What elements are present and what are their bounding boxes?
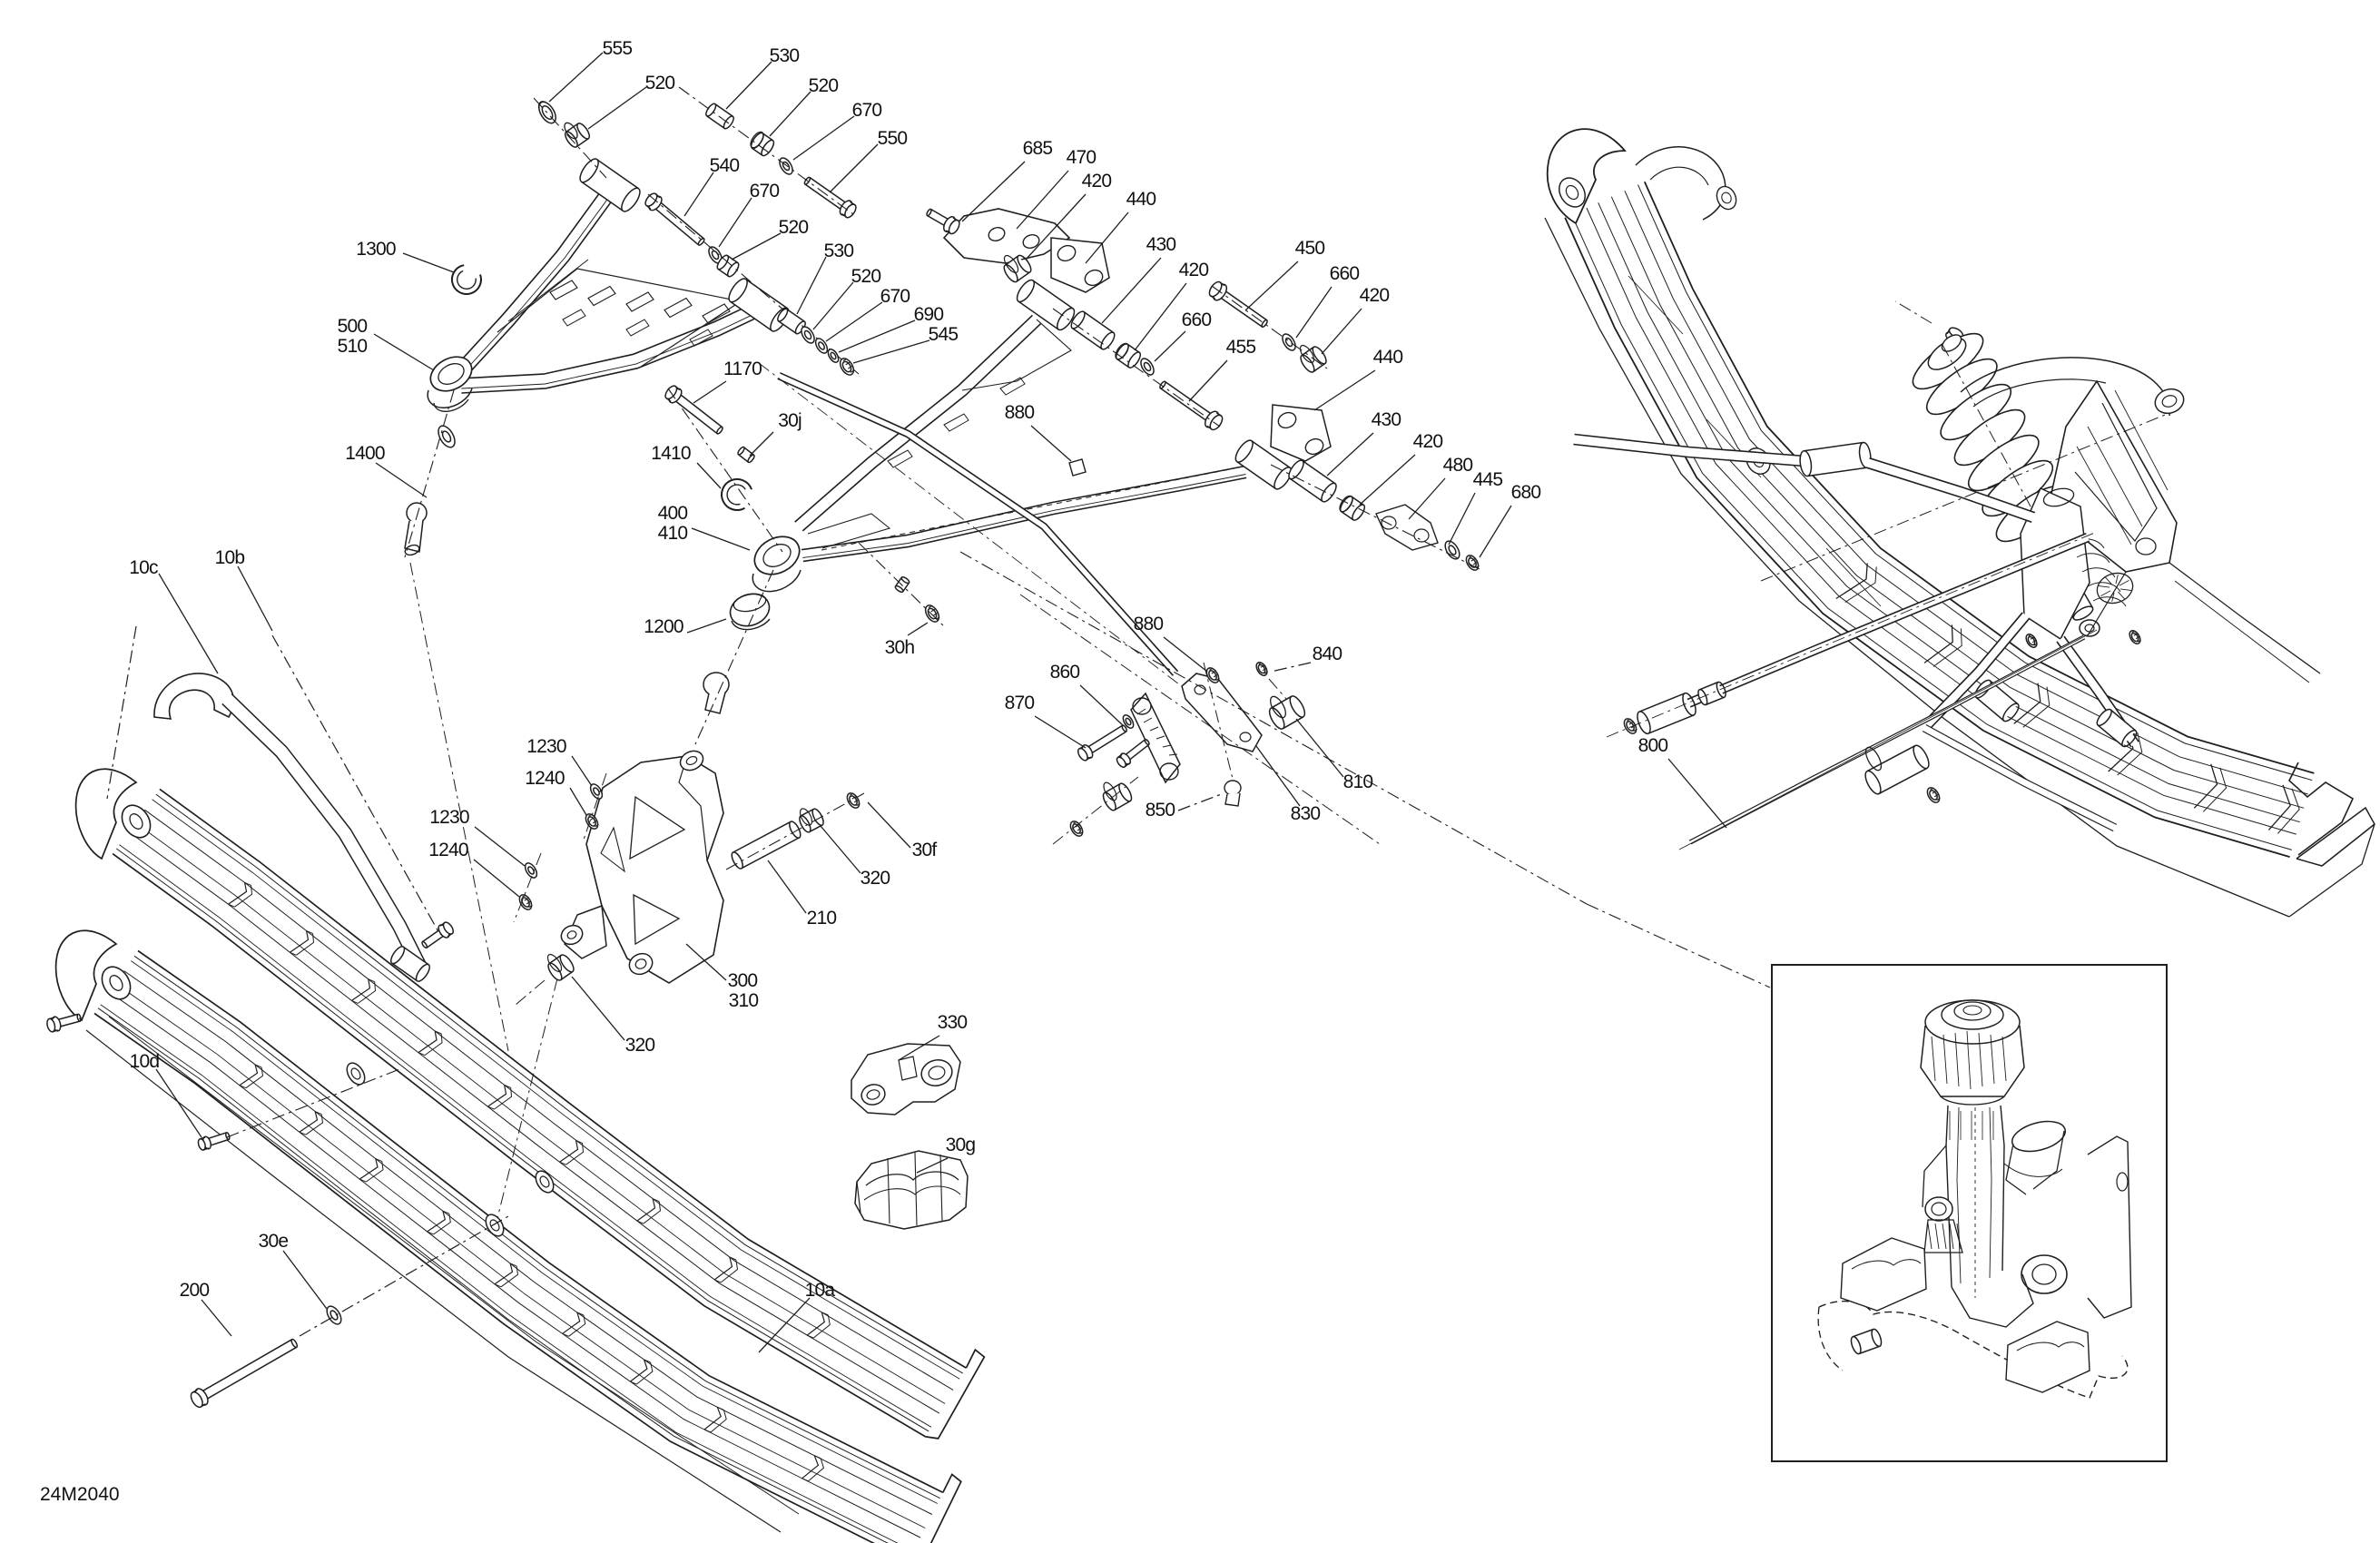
svg-text:880: 880 <box>1134 614 1164 634</box>
svg-text:685: 685 <box>1023 138 1053 159</box>
svg-text:850: 850 <box>1146 800 1175 821</box>
svg-text:870: 870 <box>1005 693 1035 713</box>
svg-text:1230: 1230 <box>429 807 469 828</box>
svg-text:420: 420 <box>1082 171 1112 192</box>
svg-text:430: 430 <box>1146 234 1176 255</box>
svg-text:520: 520 <box>645 73 675 93</box>
svg-text:860: 860 <box>1050 662 1080 683</box>
svg-text:300: 300 <box>728 970 758 991</box>
svg-text:320: 320 <box>861 868 890 889</box>
svg-text:670: 670 <box>880 286 910 307</box>
svg-text:880: 880 <box>1005 402 1035 423</box>
svg-text:24M2040: 24M2040 <box>40 1484 120 1505</box>
svg-text:520: 520 <box>779 217 809 238</box>
svg-text:10c: 10c <box>129 557 158 578</box>
svg-text:1230: 1230 <box>526 736 566 757</box>
svg-text:420: 420 <box>1179 260 1209 280</box>
svg-text:200: 200 <box>180 1280 210 1301</box>
svg-text:1410: 1410 <box>651 443 691 464</box>
svg-text:310: 310 <box>729 990 759 1011</box>
svg-text:1170: 1170 <box>723 359 762 379</box>
svg-text:1240: 1240 <box>428 840 468 860</box>
svg-text:445: 445 <box>1473 469 1503 490</box>
svg-text:430: 430 <box>1372 409 1401 430</box>
svg-text:810: 810 <box>1343 771 1373 792</box>
svg-text:680: 680 <box>1511 482 1541 503</box>
svg-text:440: 440 <box>1126 189 1156 210</box>
svg-text:840: 840 <box>1313 644 1342 664</box>
svg-text:1200: 1200 <box>644 616 684 637</box>
svg-text:545: 545 <box>929 324 959 345</box>
svg-text:30e: 30e <box>259 1231 289 1252</box>
svg-text:10a: 10a <box>805 1280 836 1301</box>
svg-text:690: 690 <box>914 304 944 325</box>
svg-text:420: 420 <box>1360 285 1390 306</box>
svg-text:210: 210 <box>807 908 837 929</box>
svg-text:550: 550 <box>878 128 908 149</box>
svg-text:555: 555 <box>603 38 633 59</box>
svg-text:660: 660 <box>1330 263 1360 284</box>
svg-text:455: 455 <box>1226 337 1256 358</box>
svg-text:520: 520 <box>851 266 881 287</box>
svg-text:30j: 30j <box>778 410 802 431</box>
svg-text:420: 420 <box>1413 431 1443 452</box>
svg-text:830: 830 <box>1291 803 1321 824</box>
svg-text:320: 320 <box>625 1035 655 1056</box>
svg-text:30f: 30f <box>912 840 938 860</box>
svg-text:30h: 30h <box>885 637 915 658</box>
svg-text:1400: 1400 <box>345 443 385 464</box>
svg-text:800: 800 <box>1638 735 1668 756</box>
svg-text:330: 330 <box>938 1012 968 1033</box>
svg-text:530: 530 <box>770 45 800 66</box>
svg-text:450: 450 <box>1295 238 1325 259</box>
svg-text:10b: 10b <box>215 547 245 568</box>
svg-text:1300: 1300 <box>356 239 396 260</box>
svg-text:520: 520 <box>809 75 839 96</box>
svg-text:500: 500 <box>338 316 368 337</box>
svg-text:1240: 1240 <box>525 768 565 789</box>
svg-text:480: 480 <box>1443 455 1473 476</box>
svg-text:510: 510 <box>338 336 368 357</box>
svg-text:440: 440 <box>1373 347 1403 368</box>
svg-text:400: 400 <box>658 503 688 524</box>
svg-text:410: 410 <box>658 523 688 544</box>
svg-text:530: 530 <box>824 241 854 261</box>
svg-text:660: 660 <box>1182 310 1212 330</box>
svg-text:30g: 30g <box>946 1135 976 1155</box>
svg-text:10d: 10d <box>130 1051 160 1072</box>
svg-text:670: 670 <box>852 100 882 121</box>
svg-text:540: 540 <box>710 155 740 176</box>
svg-text:670: 670 <box>750 181 780 201</box>
svg-text:470: 470 <box>1067 147 1097 168</box>
